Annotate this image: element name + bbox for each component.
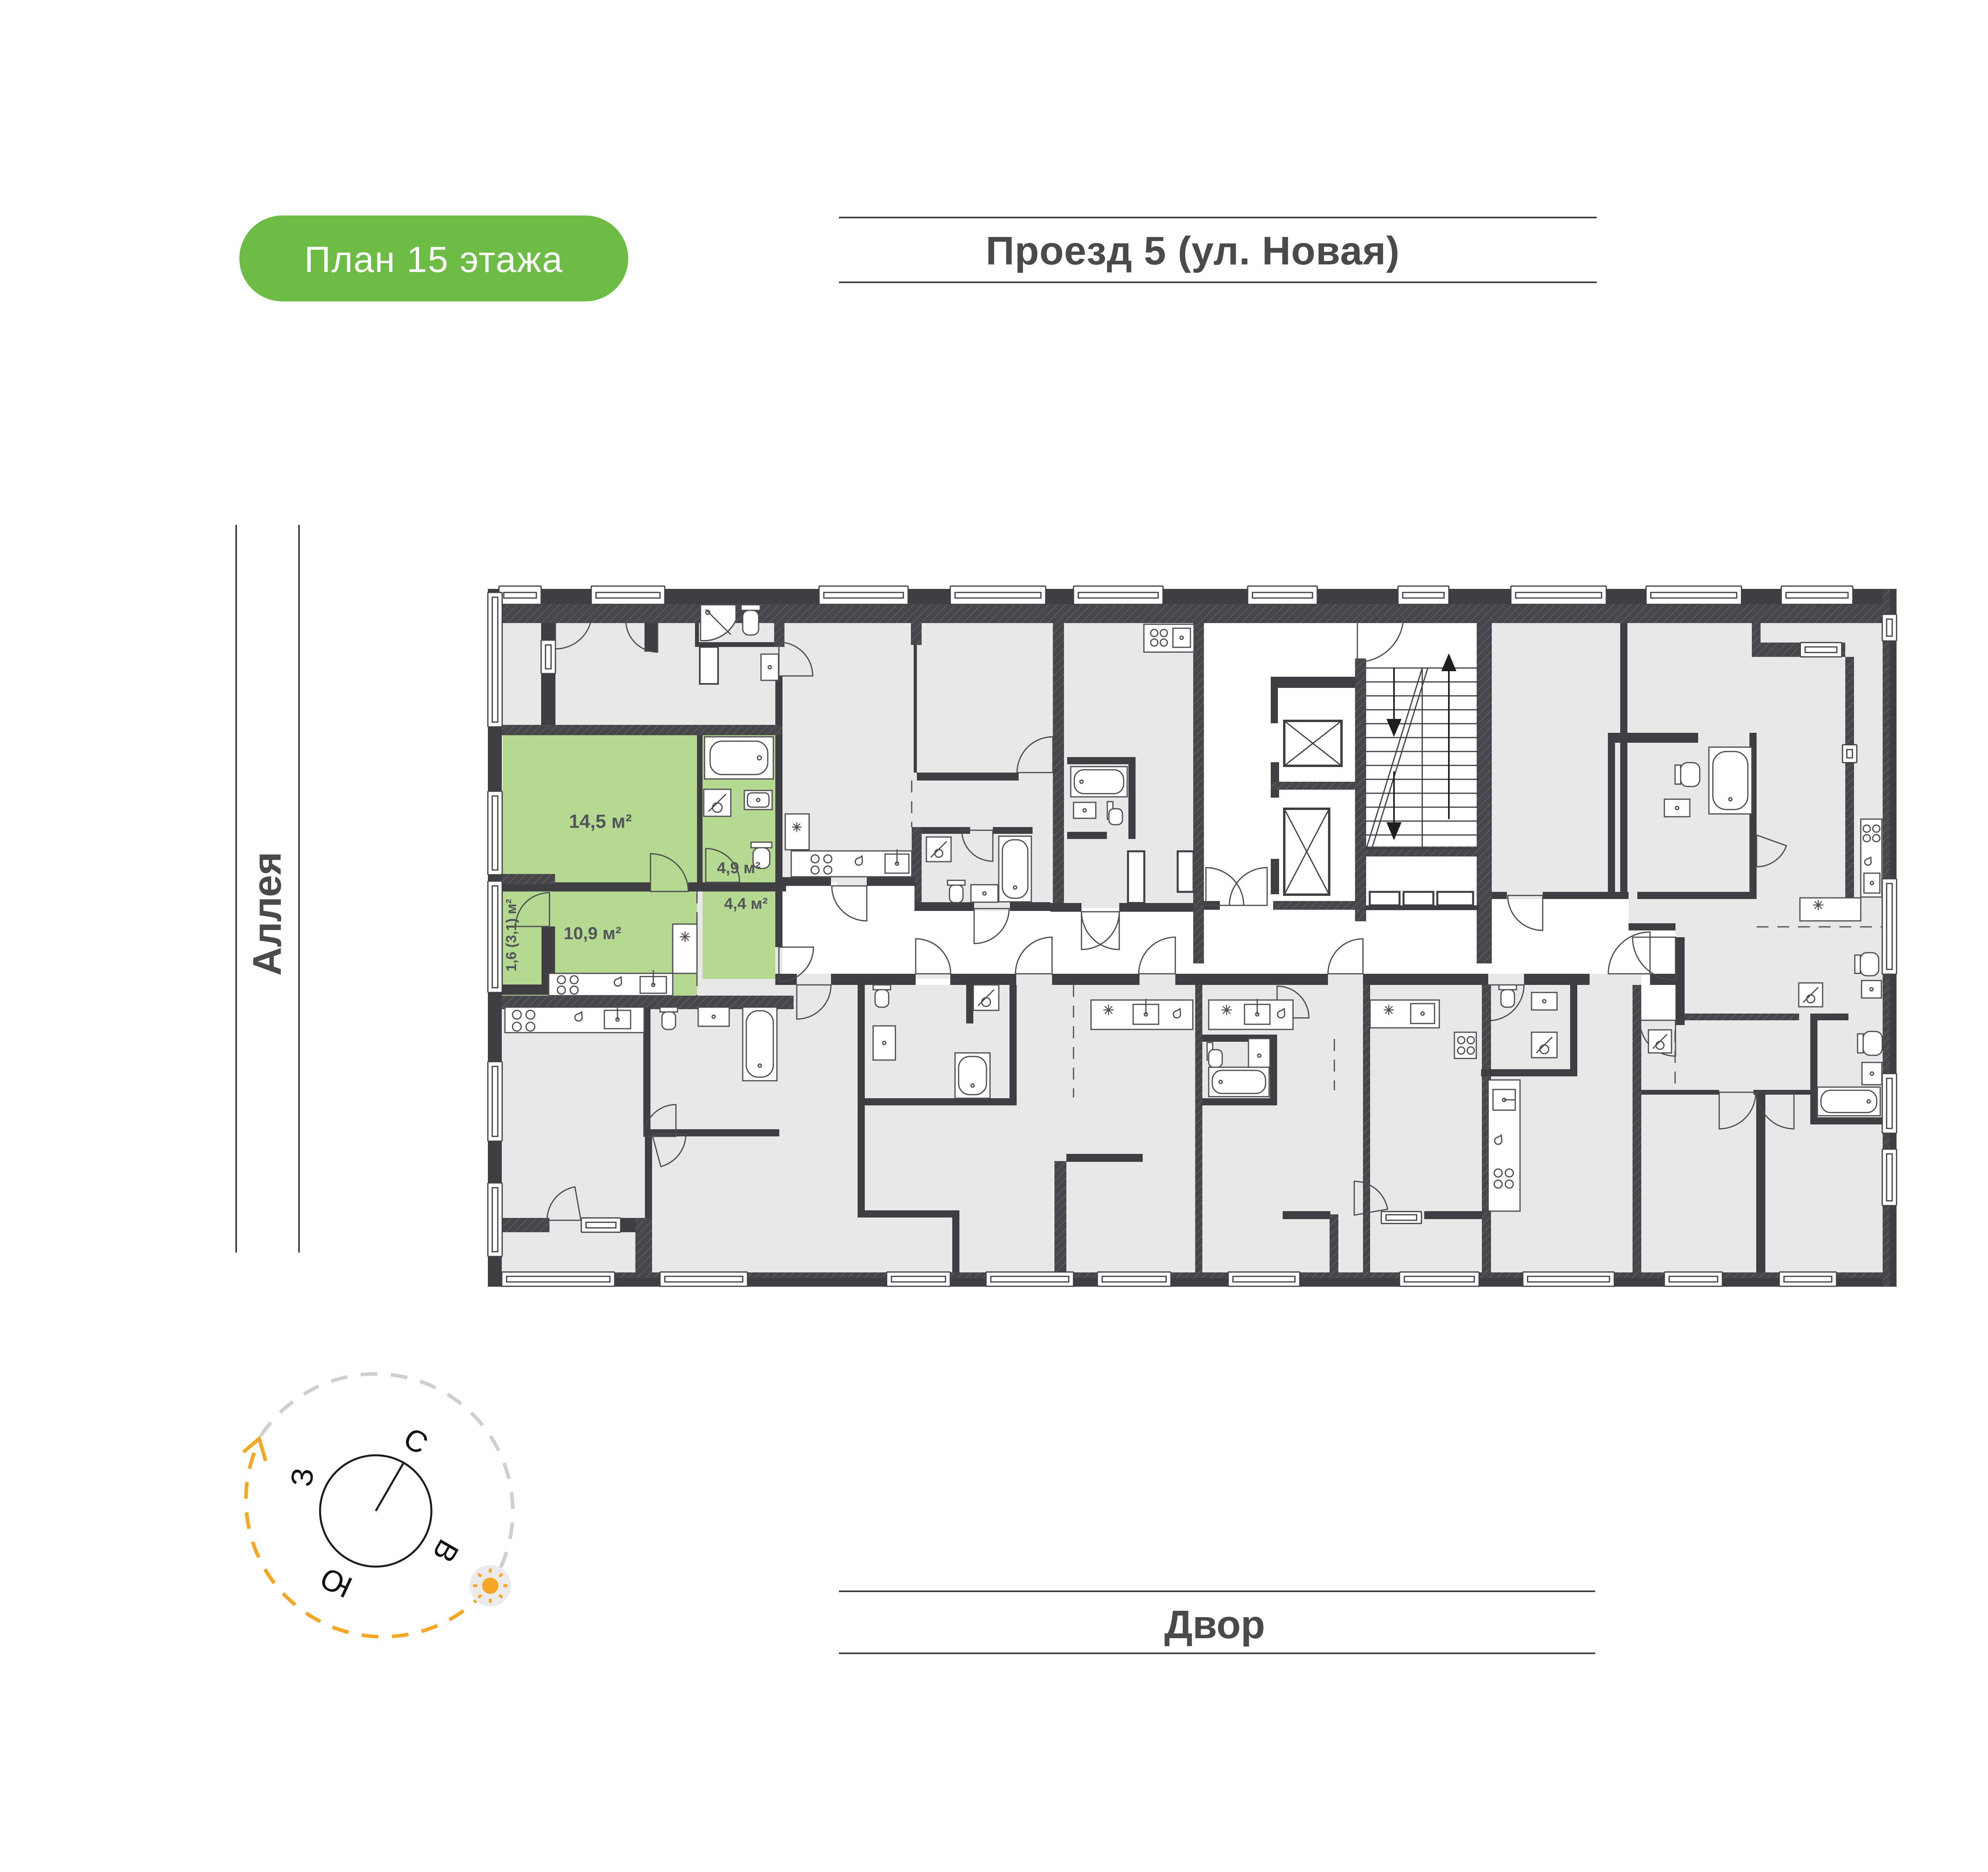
svg-text:14,5 м²: 14,5 м² (569, 811, 632, 832)
svg-text:4,4 м²: 4,4 м² (724, 895, 768, 913)
svg-text:План 15 этажа: План 15 этажа (304, 239, 563, 280)
svg-text:1,6 (3,1) м²: 1,6 (3,1) м² (503, 899, 519, 972)
svg-text:Двор: Двор (1164, 1602, 1265, 1647)
svg-text:10,9 м²: 10,9 м² (563, 924, 621, 943)
svg-text:4,9 м²: 4,9 м² (717, 859, 761, 877)
svg-text:Проезд 5 (ул. Новая): Проезд 5 (ул. Новая) (986, 229, 1400, 273)
svg-text:Аллея: Аллея (245, 852, 289, 976)
